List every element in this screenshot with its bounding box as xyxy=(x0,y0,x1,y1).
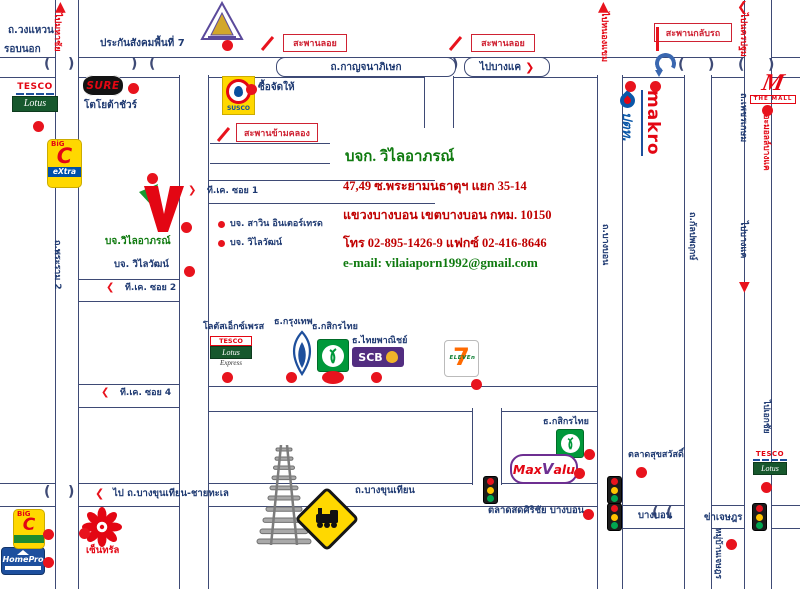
lotus-express-label: โลตัสเอ็กซ์เพรส xyxy=(203,322,264,332)
road-seg-bangbon: บางบอน xyxy=(638,511,672,522)
bridge-arc-icon: ) xyxy=(68,57,74,71)
tk-soi-2: ที.เค. ซอย 2 xyxy=(125,283,176,293)
traffic-light-icon xyxy=(752,503,767,531)
poi-vlogo-top xyxy=(147,173,158,184)
bridge-arc-icon: ( xyxy=(44,485,50,499)
to-ekkachai: ไปเอกชัย xyxy=(760,400,770,434)
co-savin-intertrade: บจ. สาวิน อินเตอร์เทรด xyxy=(230,219,323,229)
phraya-monthat-soi xyxy=(472,408,502,485)
arrow-soi4: ❮ xyxy=(101,388,109,398)
maxvalu-logo: MaxValu xyxy=(510,454,578,484)
arrow-soi2: ❮ xyxy=(106,283,114,293)
company-email: e-mail: vilaiaporn1992@gmail.com xyxy=(343,255,538,271)
flyover-box-1: สะพานลอย xyxy=(283,34,347,52)
poi-kbank-2 xyxy=(584,449,595,460)
bigc-c-icon: C xyxy=(14,518,44,532)
bridge-arc-icon: ( xyxy=(149,57,155,71)
co-vilaiaporn: บจ.วิไลอาภรณ์ xyxy=(105,236,171,248)
tesco-dashes-icon xyxy=(753,459,787,461)
traffic-light-r xyxy=(611,505,618,512)
uturn-pointer xyxy=(656,27,659,51)
arrow-soi1: ❯ xyxy=(188,186,196,196)
poi-lotus-west xyxy=(33,121,44,132)
traffic-light-y xyxy=(611,487,618,494)
to-bangkhae-box: ไปบางแค❯ xyxy=(464,57,550,77)
maxvalu-wordmark-post: alu xyxy=(553,462,575,477)
lotus-express-logo: TESCO Lotus Express xyxy=(210,336,252,367)
bank-bangkok: ธ.กรุงเทพ xyxy=(274,317,313,327)
sure-wordmark: SURE xyxy=(86,80,119,92)
canal-road-vert xyxy=(424,76,454,128)
ring-road-name-line2: รอบนอก xyxy=(4,44,41,56)
market-suksawat: ตลาดสุขสวัสดิ์ xyxy=(628,450,684,460)
co-vilaiwat-2: บจ. วิไลวัฒน์ xyxy=(114,260,169,271)
poi-susco-shop xyxy=(246,84,257,95)
kasikorn-bank-logo xyxy=(317,339,349,372)
canal-road-horiz xyxy=(210,143,330,164)
kbank-circle-icon xyxy=(322,345,344,367)
company-name: บจก. วิไลอาภรณ์ xyxy=(345,144,454,168)
company-address-line2: แขวงบางบอน เขตบางบอน กทม. 10150 xyxy=(343,205,552,225)
poi-sure xyxy=(128,83,139,94)
bridge-arc-icon: ( xyxy=(678,58,684,72)
direction-map: บจก. วิไลอาภรณ์ 47,49 ซ.พระยามนธาตุฯ แยก… xyxy=(0,0,800,589)
mooban-chetsada: หมู่บ้านเจษฎร xyxy=(712,528,722,579)
canal-slash xyxy=(217,127,230,142)
arrow-bangkhunthian: ❮ xyxy=(95,488,104,499)
arrow-down-bangkhae: ▼ xyxy=(739,280,750,294)
poi-suksawat xyxy=(636,467,647,478)
poi-makro-1 xyxy=(625,81,636,92)
bridge-arc-icon: ) xyxy=(131,57,137,71)
flyover-box-2: สะพานลอย xyxy=(471,34,535,52)
train-icon xyxy=(312,502,342,536)
homepro-strip xyxy=(5,566,41,570)
ptt-wordmark: ปตท. xyxy=(617,112,638,142)
to-bangkhunthian-chaithale: ไป ถ.บางขุนเทียน-ชายทะเล xyxy=(113,489,229,500)
tk-soi-4: ที.เค. ซอย 4 xyxy=(120,388,171,398)
central-label: เซ็นทรัล xyxy=(86,546,119,557)
poi-scb xyxy=(371,372,382,383)
the-mall-m-icon: M xyxy=(748,72,799,94)
susco-logo: SUSCO xyxy=(222,76,255,115)
bank-kasikorn-2: ธ.กสิกรไทย xyxy=(543,417,589,427)
traffic-light-y xyxy=(611,514,618,521)
traffic-light-g xyxy=(611,522,618,529)
company-phone: โทร 02-895-1426-9 แฟกซ์ 02-416-8646 xyxy=(343,233,547,253)
to-nongkhaem: ไปหนองแขม xyxy=(599,12,609,62)
toyota-sure-logo: SURE xyxy=(83,75,123,96)
bigc-extra-logo: BiG C eXtra xyxy=(47,139,82,188)
poi-lotus-express xyxy=(222,372,233,383)
bridge-arc-icon: ( xyxy=(44,57,50,71)
bangbon-road: ถ.บางบอน xyxy=(600,224,610,265)
bridge-arc-icon: ( xyxy=(738,58,744,72)
phetkasem-road: ถ.เพชรเกษม xyxy=(738,93,748,142)
poi-themall xyxy=(762,105,773,116)
poi-vilaiaporn xyxy=(181,222,192,233)
maxvalu-v: V xyxy=(542,460,554,478)
poi-lotus-bangbon xyxy=(761,482,772,493)
poi-bbl xyxy=(286,372,297,383)
arrow-left-nakhonpathom: ❮ xyxy=(737,1,748,14)
arrow-up-nongkhaem: ▲ xyxy=(598,0,609,14)
poi-homepro xyxy=(43,557,54,568)
poi-sso xyxy=(222,40,233,51)
poi-central xyxy=(79,528,90,539)
bridge-arc-icon: ) xyxy=(68,485,74,499)
outer-ring-west-road xyxy=(55,0,79,589)
homepro-logo: HomePro xyxy=(1,547,45,575)
bigc-extra-wordmark: eXtra xyxy=(48,167,81,177)
to-mahachai: ไปมหาชัย xyxy=(52,13,62,52)
bank-kasikorn-1: ธ.กสิกรไทย xyxy=(312,322,358,332)
tesco-dashes-icon xyxy=(12,93,58,95)
to-bangkhae-south: ไปบางแค xyxy=(738,221,748,258)
poi-bigc-south xyxy=(43,529,54,540)
lotus-wordmark: Lotus xyxy=(753,462,787,475)
bank-scb: ธ.ไทยพาณิชย์ xyxy=(352,336,407,346)
traffic-light-r xyxy=(756,505,763,512)
bangkok-bank-logo xyxy=(286,330,318,376)
toyota-sure: โตโยต้าชัวร์ xyxy=(84,100,137,112)
kanchanaphisek-box: ถ.กาญจนาภิเษก xyxy=(276,57,456,77)
road-seg-chetsada: ข่าเจษฎร xyxy=(704,513,742,524)
tesco-wordmark-small: TESCO xyxy=(210,336,252,346)
to-bangkhae-box-label: ไปบางแค xyxy=(480,60,521,75)
kanchanaphisek-box-label: ถ.กาญจนาภิเษก xyxy=(330,60,401,75)
scb-bank-logo: SCB xyxy=(352,347,404,367)
tesco-wordmark: TESCO xyxy=(12,83,58,92)
traffic-light-g xyxy=(756,522,763,529)
tk-soi-1: ที.เค. ซอย 1 xyxy=(207,186,258,196)
market-sirichai: ตลาดสดศิริชัย บางบอน xyxy=(488,506,584,517)
uturn-bridge-box: สะพานกลับรถ xyxy=(654,23,732,42)
lotus-wordmark-small: Lotus xyxy=(210,346,252,359)
homepro-wordmark: HomePro xyxy=(2,555,44,564)
susco-drop-icon xyxy=(234,86,243,97)
poi-kbank xyxy=(322,371,344,384)
to-nakhonpathom: ไปนครปฐม xyxy=(738,13,748,57)
poi-maxvalu xyxy=(574,468,585,479)
bangkhunthian-label: ถ.บางขุนเทียน xyxy=(355,486,415,497)
to-bangkhae-box-arrow-icon: ❯ xyxy=(525,61,534,74)
tesco-lotus-bangbon-logo: TESCO Lotus xyxy=(753,451,787,475)
social-security-logo xyxy=(200,1,244,43)
traffic-light-icon xyxy=(607,476,622,504)
ring-road-name-line1: ถ.วงแหวน xyxy=(8,25,54,37)
uturn-bridge-box-label: สะพานกลับรถ xyxy=(666,26,720,40)
flyover-box-2-label: สะพานลอย xyxy=(481,36,525,50)
the-mall-wordmark: THE MALL xyxy=(750,95,796,104)
company-address-line1: 47,49 ซ.พระยามนธาตุฯ แยก 35-14 xyxy=(343,176,527,196)
eleven-wordmark: ELEVEn xyxy=(446,355,479,361)
tesco-wordmark: TESCO xyxy=(753,451,787,458)
lotus-wordmark: Lotus xyxy=(12,96,58,112)
scb-wordmark: SCB xyxy=(358,351,382,364)
traffic-light-r xyxy=(611,478,618,485)
traffic-light-icon xyxy=(607,503,622,531)
flyover-box-1-label: สะพานลอย xyxy=(293,36,337,50)
ptt-flame-core-icon xyxy=(623,96,633,106)
express-wordmark: Express xyxy=(210,359,252,367)
bullet-vilaiwat xyxy=(218,240,225,247)
traffic-light-y xyxy=(487,487,494,494)
traffic-light-r xyxy=(487,478,494,485)
traffic-light-g xyxy=(611,495,618,502)
traffic-light-g xyxy=(487,495,494,502)
scb-emblem-icon xyxy=(386,351,398,363)
shop-sue-jad-hai: ซื้อจัดให้ xyxy=(258,82,295,94)
bullet-savin xyxy=(218,221,225,228)
bigc-c-icon: C xyxy=(48,148,81,165)
traffic-light-icon xyxy=(483,476,498,504)
bigc-green-strip xyxy=(14,535,44,543)
the-mall-logo: M THE MALL xyxy=(750,72,796,104)
rama2-road: ถ.พระราม 2 xyxy=(52,240,62,290)
susco-wordmark: SUSCO xyxy=(223,105,254,112)
poi-sirichai xyxy=(583,509,594,520)
flyover-slash-2 xyxy=(449,36,462,51)
kbank-circle-icon xyxy=(561,434,580,453)
canal-bridge-box-label: สะพานข้ามคลอง xyxy=(244,126,310,140)
poi-mooban xyxy=(726,539,737,550)
makro-logo: makro xyxy=(641,90,662,156)
central-flower-logo xyxy=(82,507,122,547)
u-turn-icon xyxy=(655,53,676,77)
traffic-light-y xyxy=(756,514,763,521)
poi-seven xyxy=(471,379,482,390)
poi-vilaiwat xyxy=(184,266,195,277)
co-vilaiwat-1: บจ. วิไลวัฒน์ xyxy=(230,238,282,248)
arrow-up-mahachai: ▲ xyxy=(55,0,66,14)
bridge-arc-icon: ) xyxy=(768,58,774,72)
poi-makro-2 xyxy=(650,81,661,92)
kanlapaphruek-road: ถ.กัลปพฤกษ์ xyxy=(687,212,697,260)
bridge-arc-icon: ) xyxy=(708,58,714,72)
mid-shops-road xyxy=(207,386,597,412)
canal-bridge-box: สะพานข้ามคลอง xyxy=(236,123,318,142)
bigc-south-logo: BiG C xyxy=(13,509,45,549)
seven-eleven-logo: 7 ELEVEn xyxy=(444,340,479,377)
sso-office: ประกันสังคมพื้นที่ 7 xyxy=(100,38,185,50)
tesco-lotus-logo: TESCO Lotus xyxy=(12,83,58,112)
maxvalu-wordmark-pre: Max xyxy=(513,462,542,477)
flyover-slash-1 xyxy=(261,36,274,51)
